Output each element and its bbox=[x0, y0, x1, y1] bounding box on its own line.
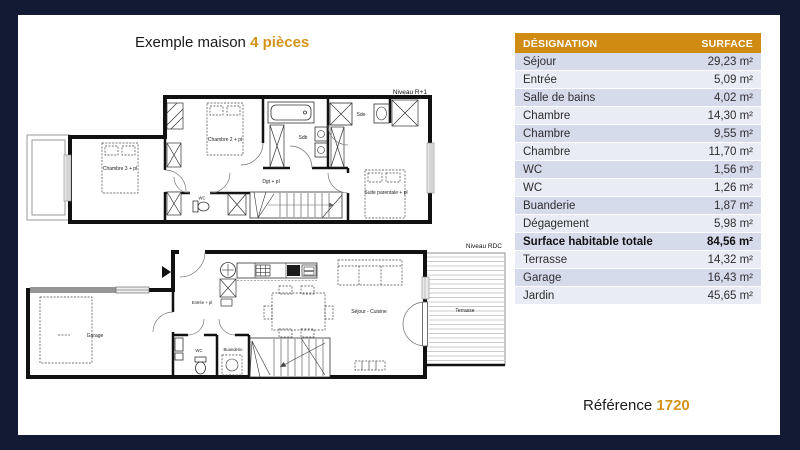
table-row: Chambre9,55 m² bbox=[515, 125, 761, 143]
row-label: Chambre bbox=[515, 143, 683, 161]
reference: Référence 1720 bbox=[583, 397, 690, 414]
room-label-dgt: Dgt + pl bbox=[262, 179, 279, 185]
room-label-suite: Suite parentale + pl bbox=[364, 190, 407, 196]
window bbox=[64, 155, 71, 201]
title-prefix: Exemple maison bbox=[135, 34, 246, 51]
window bbox=[427, 143, 434, 193]
room-label-terrasse: Terrasse bbox=[455, 308, 474, 314]
table-row: Salle de bains4,02 m² bbox=[515, 89, 761, 107]
room-label-chambre2: Chambre 2 + pl bbox=[208, 137, 242, 143]
row-label: WC bbox=[515, 161, 683, 179]
table-row: Jardin45,65 m² bbox=[515, 287, 761, 305]
table-row: Entrée5,09 m² bbox=[515, 71, 761, 89]
page-title: Exemple maison 4 pièces bbox=[135, 34, 309, 51]
row-label: Salle de bains bbox=[515, 89, 683, 107]
window bbox=[422, 277, 429, 299]
row-value: 1,87 m² bbox=[683, 197, 761, 215]
room-label-wc-ground: WC bbox=[196, 348, 203, 353]
garage-window bbox=[116, 287, 149, 293]
balcony-inner bbox=[32, 140, 65, 215]
row-label: Chambre bbox=[515, 107, 683, 125]
surface-table-body: Séjour29,23 m²Entrée5,09 m²Salle de bain… bbox=[515, 53, 761, 305]
row-value: 1,56 m² bbox=[683, 161, 761, 179]
garage-wall-hatch bbox=[30, 287, 116, 293]
row-label: WC bbox=[515, 179, 683, 197]
title-highlight: 4 pièces bbox=[250, 34, 309, 51]
entry-gap bbox=[179, 248, 205, 256]
room-label-wc-upper: WC bbox=[199, 196, 206, 201]
room-label-sdb: Sdb bbox=[299, 135, 308, 141]
row-value: 4,02 m² bbox=[683, 89, 761, 107]
row-value: 14,32 m² bbox=[683, 251, 761, 269]
reference-label: Référence bbox=[583, 397, 652, 414]
row-value: 5,98 m² bbox=[683, 215, 761, 233]
row-label: Jardin bbox=[515, 287, 683, 305]
table-row: Séjour29,23 m² bbox=[515, 53, 761, 71]
shower bbox=[330, 103, 352, 125]
row-label: Chambre bbox=[515, 125, 683, 143]
bathtub bbox=[268, 102, 314, 123]
plan-ground: Entrée + pl WC Buanderie Séjour - Cuisin… bbox=[28, 243, 505, 377]
reference-value: 1720 bbox=[656, 397, 689, 414]
level-label-r1: Niveau R+1 bbox=[393, 89, 428, 96]
row-value: 14,30 m² bbox=[683, 107, 761, 125]
balcony-outline bbox=[27, 135, 70, 220]
entry-arrow bbox=[162, 266, 171, 278]
plan-upper: Chambre 2 + pl Chambre 3 + pl Sdb Sde Dg… bbox=[27, 89, 434, 222]
table-row: Dégagement5,98 m² bbox=[515, 215, 761, 233]
staircase bbox=[250, 192, 342, 218]
level-label-rdc: Niveau RDC bbox=[466, 243, 502, 250]
room-label-chambre3: Chambre 3 + pl bbox=[103, 166, 137, 172]
row-value: 11,70 m² bbox=[683, 143, 761, 161]
row-value: 1,26 m² bbox=[683, 179, 761, 197]
column-header-surface: SURFACE bbox=[683, 33, 761, 53]
room-label-entree: Entrée + pl bbox=[192, 300, 212, 305]
row-label: Dégagement bbox=[515, 215, 683, 233]
row-value: 45,65 m² bbox=[683, 287, 761, 305]
row-label: Séjour bbox=[515, 53, 683, 71]
staircase bbox=[250, 338, 330, 377]
page-canvas: Chambre 2 + pl Chambre 3 + pl Sdb Sde Dg… bbox=[18, 15, 780, 435]
table-row: WC1,26 m² bbox=[515, 179, 761, 197]
row-label: Terrasse bbox=[515, 251, 683, 269]
row-label: Surface habitable totale bbox=[515, 233, 683, 251]
row-value: 29,23 m² bbox=[683, 53, 761, 71]
surface-table: DÉSIGNATION SURFACE Séjour29,23 m²Entrée… bbox=[515, 33, 761, 305]
table-row: Chambre11,70 m² bbox=[515, 143, 761, 161]
table-row: Garage16,43 m² bbox=[515, 269, 761, 287]
room-label-buanderie: Buanderie bbox=[223, 347, 243, 352]
table-row: Chambre14,30 m² bbox=[515, 107, 761, 125]
table-row: Terrasse14,32 m² bbox=[515, 251, 761, 269]
toilet bbox=[193, 201, 209, 212]
room-label-sejour: Séjour - Cuisine bbox=[351, 309, 387, 315]
row-value: 84,56 m² bbox=[683, 233, 761, 251]
row-value: 9,55 m² bbox=[683, 125, 761, 143]
row-label: Entrée bbox=[515, 71, 683, 89]
table-header-row: DÉSIGNATION SURFACE bbox=[515, 33, 761, 53]
row-label: Buanderie bbox=[515, 197, 683, 215]
room-label-garage: Garage bbox=[87, 333, 104, 339]
table-row: Surface habitable totale84,56 m² bbox=[515, 233, 761, 251]
hob bbox=[287, 265, 300, 276]
row-value: 16,43 m² bbox=[683, 269, 761, 287]
room-label-sde: Sde bbox=[357, 112, 366, 118]
row-value: 5,09 m² bbox=[683, 71, 761, 89]
row-label: Garage bbox=[515, 269, 683, 287]
column-header-designation: DÉSIGNATION bbox=[515, 33, 683, 53]
table-row: Buanderie1,87 m² bbox=[515, 197, 761, 215]
table-row: WC1,56 m² bbox=[515, 161, 761, 179]
